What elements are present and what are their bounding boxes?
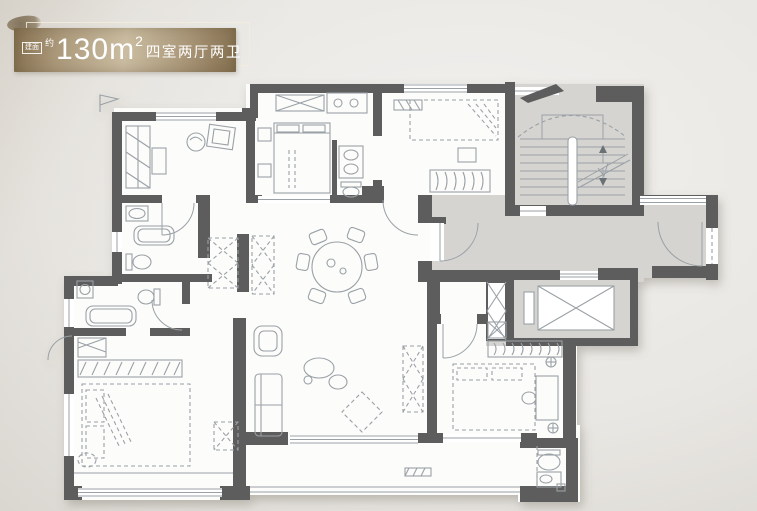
shaft-duct: [487, 282, 506, 340]
floor-plan-drawing: [0, 0, 757, 511]
elevator-counterweight: [524, 292, 534, 324]
elevator: [487, 272, 638, 346]
unit-entry-door: [430, 223, 444, 261]
stair-divider: [568, 137, 577, 205]
elevator-door: [560, 271, 598, 280]
floorplan-page: 建面 约 130m 2 四室两厅两卫: [0, 0, 757, 511]
